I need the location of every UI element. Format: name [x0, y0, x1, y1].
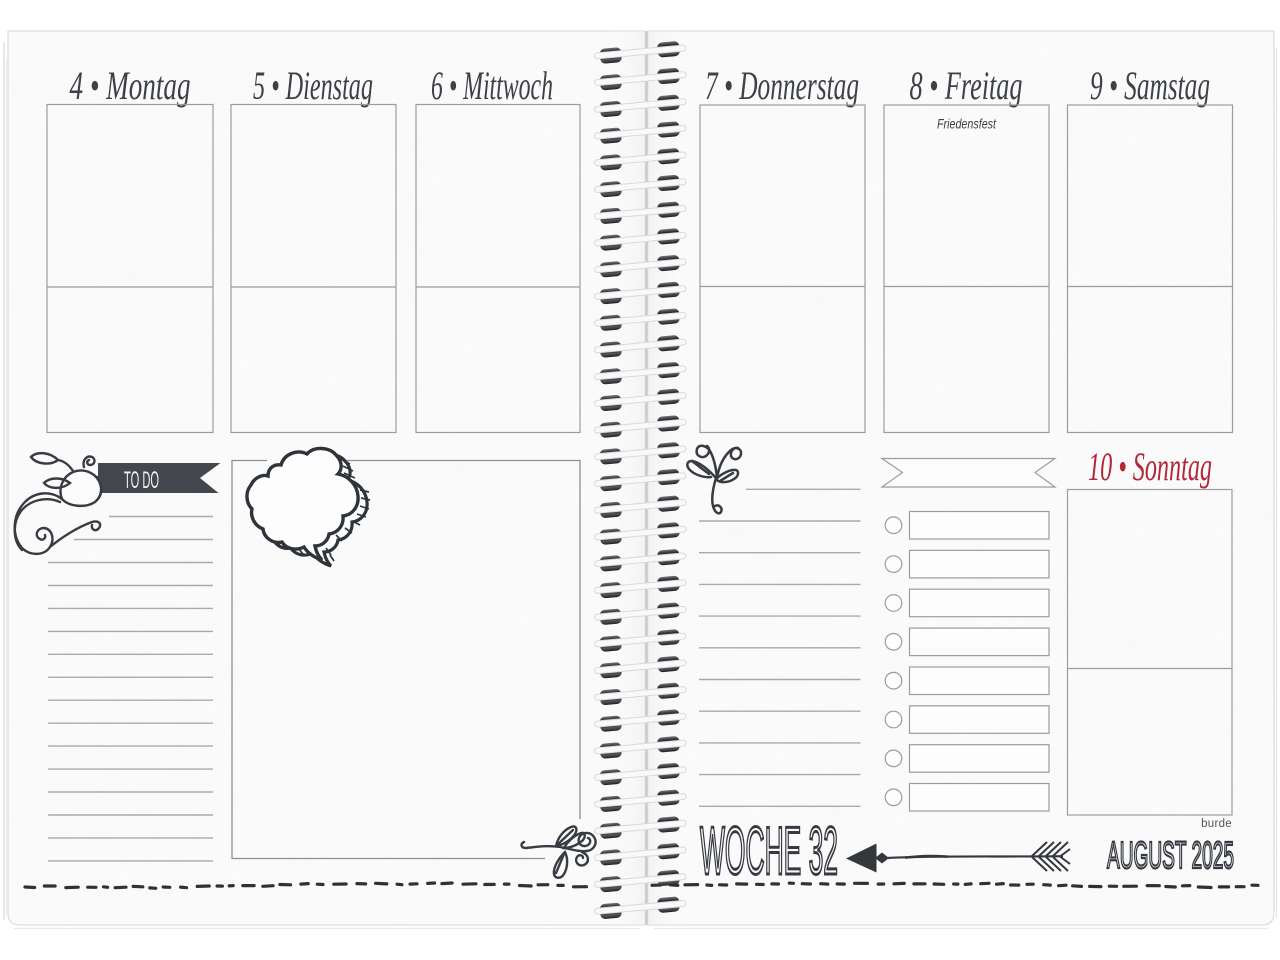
- svg-text:Friedensfest: Friedensfest: [937, 116, 997, 132]
- svg-text:9 • Samstag: 9 • Samstag: [1090, 63, 1210, 108]
- svg-text:TO DO: TO DO: [124, 467, 159, 494]
- svg-text:burde: burde: [1201, 818, 1232, 830]
- svg-text:7 • Donnerstag: 7 • Donnerstag: [705, 63, 859, 108]
- svg-text:WOCHE 32: WOCHE 32: [700, 813, 838, 889]
- svg-text:8 • Freitag: 8 • Freitag: [910, 63, 1023, 108]
- svg-text:5 • Dienstag: 5 • Dienstag: [253, 63, 373, 108]
- svg-text:AUGUST 2025: AUGUST 2025: [1107, 835, 1234, 877]
- svg-text:6 • Mittwoch: 6 • Mittwoch: [431, 63, 553, 108]
- svg-text:4 • Montag: 4 • Montag: [70, 63, 191, 108]
- svg-text:10 • Sonntag: 10 • Sonntag: [1088, 444, 1212, 489]
